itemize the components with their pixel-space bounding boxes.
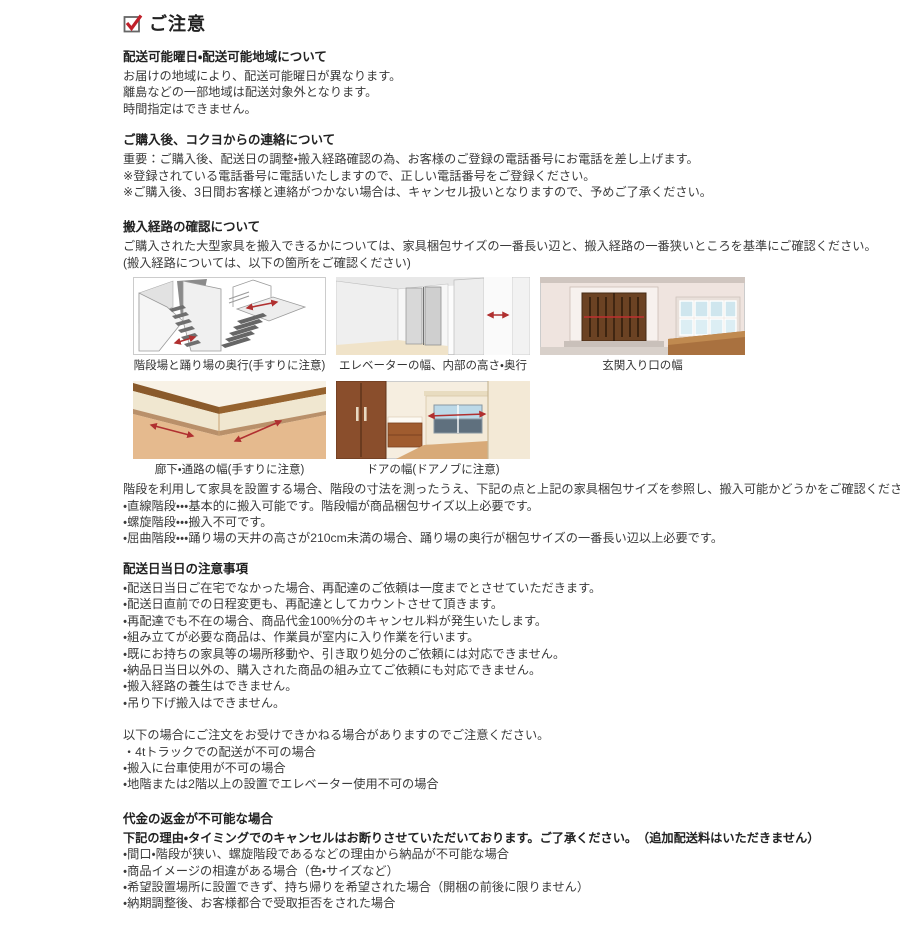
page-title: ご注意	[149, 10, 206, 36]
bullet-line: ・地階または2階以上の設置でエレベーター使用不可の場合	[123, 776, 898, 792]
entrance-illustration: 玄関入り口の幅	[540, 277, 745, 373]
bullet-line: ・既にお持ちの家具等の場所移動や、引き取り処分のご依頼には対応できません。	[123, 646, 898, 662]
bullet-line: ・吊り下げ搬入はできません。	[123, 695, 898, 711]
section-order-refusal: 以下の場合にご注文をお受けできかねる場合がありますのでご注意ください。 ・4tト…	[123, 727, 898, 793]
bullet-line: ・納品日当日以外の、購入された商品の組み立てご依頼にも対応できません。	[123, 662, 898, 678]
section-contact-after-purchase: ご購入後、コクヨからの連絡について 重要：ご購入後、配送日の調整・搬入経路確認の…	[123, 132, 898, 200]
text-line: 階段を利用して家具を設置する場合、階段の寸法を測ったうえ、下記の点と上記の家具梱…	[123, 481, 898, 497]
bullet-line: ・屈曲階段・・・踊り場の天井の高さが210cm未満の場合、踊り場の奥行が梱包サイ…	[123, 530, 898, 546]
elevator-illustration: エレベーターの幅、内部の高さ・奥行	[336, 277, 530, 373]
text-line: ※ご購入後、3日間お客様と連絡がつかない場合は、キャンセル扱いとなりますので、予…	[123, 184, 898, 200]
illustration-caption: 階段場と踊り場の奥行(手すりに注意)	[133, 357, 326, 373]
text-line: 離島などの一部地域は配送対象外となります。	[123, 84, 898, 100]
section-heading: 配送日当日の注意事項	[123, 561, 898, 577]
bullet-line: ・希望設置場所に設置できず、持ち帰りを希望された場合（開梱の前後に限りません）	[123, 879, 898, 895]
notice-page: ご注意 配送可能曜日・配送可能地域について お届けの地域により、配送可能曜日が異…	[123, 10, 898, 927]
bullet-line: ・搬入に台車使用が不可の場合	[123, 760, 898, 776]
section-delivery-day-notes: 配送日当日の注意事項 ・配送日当日ご在宅でなかった場合、再配達のご依頼は一度まで…	[123, 561, 898, 711]
bullet-line: ・配送日当日ご在宅でなかった場合、再配達のご依頼は一度までとさせていただきます。	[123, 580, 898, 596]
text-line: ※登録されている電話番号に電話いたしますので、正しい電話番号をご登録ください。	[123, 168, 898, 184]
bullet-line: ・直線階段・・・基本的に搬入可能です。階段幅が商品梱包サイズ以上必要です。	[123, 498, 898, 514]
bullet-line: ・螺旋階段・・・搬入不可です。	[123, 514, 898, 530]
illustration-row-2: 廊下・通路の幅(手すりに注意)	[133, 381, 898, 477]
bullet-line: ・配送日直前での日程変更も、再配達としてカウントさせて頂きます。	[123, 596, 898, 612]
section-heading: 配送可能曜日・配送可能地域について	[123, 49, 898, 65]
section-heading: ご購入後、コクヨからの連絡について	[123, 132, 898, 148]
section-stairs-note: 階段を利用して家具を設置する場合、階段の寸法を測ったうえ、下記の点と上記の家具梱…	[123, 481, 898, 547]
section-heading: 代金の返金が不可能な場合	[123, 811, 898, 827]
corridor-illustration: 廊下・通路の幅(手すりに注意)	[133, 381, 326, 477]
illustration-caption: 玄関入り口の幅	[540, 357, 745, 373]
text-line: 以下の場合にご注文をお受けできかねる場合がありますのでご注意ください。	[123, 727, 898, 743]
section-heading: 搬入経路の確認について	[123, 219, 898, 235]
text-line: ご購入された大型家具を搬入できるかについては、家具梱包サイズの一番長い辺と、搬入…	[123, 238, 898, 254]
page-title-row: ご注意	[123, 10, 898, 36]
section-delivery-days: 配送可能曜日・配送可能地域について お届けの地域により、配送可能曜日が異なります…	[123, 49, 898, 117]
bullet-line: ・搬入経路の養生はできません。	[123, 678, 898, 694]
bullet-line: ・納期調整後、お客様都合で受取拒否をされた場合	[123, 895, 898, 911]
bullet-line: ・再配達でも不在の場合、商品代金100%分のキャンセル料が発生いたします。	[123, 613, 898, 629]
text-line: 時間指定はできません。	[123, 101, 898, 117]
illustration-caption: 廊下・通路の幅(手すりに注意)	[133, 461, 326, 477]
text-line: (搬入経路については、以下の箇所をご確認ください)	[123, 255, 898, 271]
bullet-line: ・間口・階段が狭い、螺旋階段であるなどの理由から納品が不可能な場合	[123, 846, 898, 862]
bullet-line: ・組み立てが必要な商品は、作業員が室内に入り作業を行います。	[123, 629, 898, 645]
illustration-row-1: 階段場と踊り場の奥行(手すりに注意) エレベーターの幅、内部の高さ・奥行	[133, 277, 898, 373]
text-line: お届けの地域により、配送可能曜日が異なります。	[123, 68, 898, 84]
illustration-caption: エレベーターの幅、内部の高さ・奥行	[336, 357, 530, 373]
text-line: 重要：ご購入後、配送日の調整・搬入経路確認の為、お客様のご登録の電話番号にお電話…	[123, 151, 898, 167]
door-width-illustration: ドアの幅(ドアノブに注意)	[336, 381, 530, 477]
bullet-line: ・商品イメージの相違がある場合（色・サイズなど）	[123, 863, 898, 879]
text-line: 下記の理由・タイミングでのキャンセルはお断りさせていただいております。ご了承くだ…	[123, 830, 898, 846]
stairs-landing-illustration: 階段場と踊り場の奥行(手すりに注意)	[133, 277, 326, 373]
illustration-caption: ドアの幅(ドアノブに注意)	[336, 461, 530, 477]
section-refund-impossible: 代金の返金が不可能な場合 下記の理由・タイミングでのキャンセルはお断りさせていた…	[123, 811, 898, 912]
red-checkbox-icon	[123, 13, 144, 34]
bullet-line: ・4tトラックでの配送が不可の場合	[123, 744, 898, 760]
section-carry-in-route: 搬入経路の確認について ご購入された大型家具を搬入できるかについては、家具梱包サ…	[123, 219, 898, 271]
